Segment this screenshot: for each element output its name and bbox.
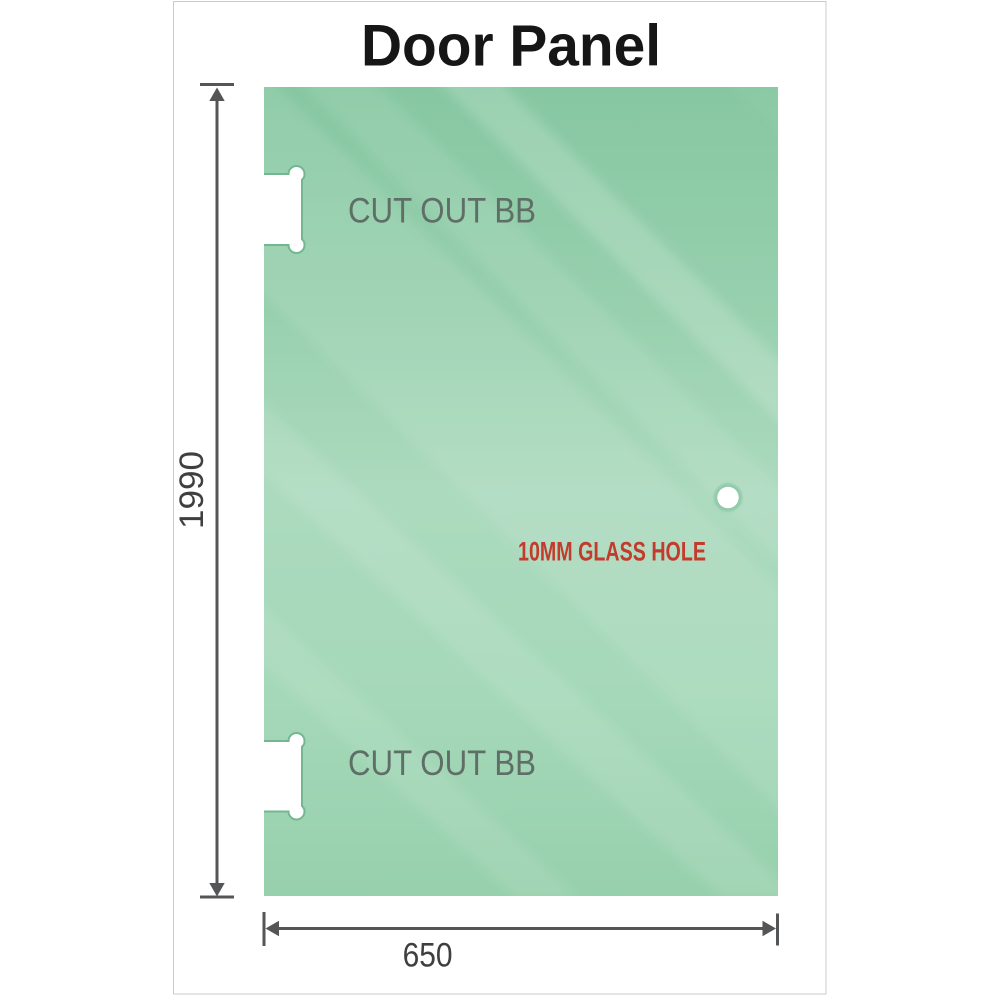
svg-text:10MM GLASS HOLE: 10MM GLASS HOLE [518, 537, 706, 567]
svg-text:650: 650 [403, 937, 453, 975]
svg-text:Door Panel: Door Panel [361, 14, 661, 79]
svg-text:1990: 1990 [173, 451, 211, 529]
svg-text:CUT OUT BB: CUT OUT BB [348, 192, 536, 231]
svg-text:CUT OUT BB: CUT OUT BB [348, 744, 536, 783]
